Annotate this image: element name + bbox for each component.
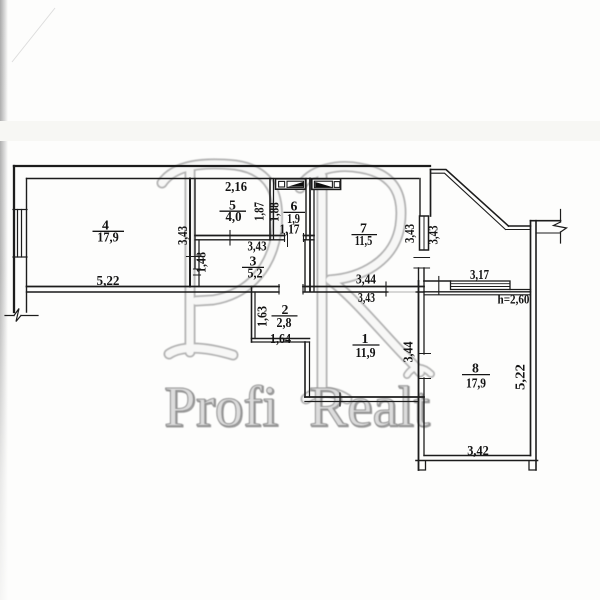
svg-text:5,2: 5,2 [248,266,263,281]
svg-text:1: 1 [362,331,369,346]
svg-text:3,42: 3,42 [467,443,489,458]
svg-text:1,64: 1,64 [270,331,291,346]
svg-text:3,43: 3,43 [426,225,441,244]
svg-text:3,43: 3,43 [402,224,417,243]
svg-text:3,44: 3,44 [401,341,416,362]
svg-text:3,43: 3,43 [358,290,375,305]
svg-text:11,9: 11,9 [356,345,376,360]
svg-text:17,9: 17,9 [97,230,119,245]
svg-text:3,44: 3,44 [356,272,376,287]
svg-text:11,5: 11,5 [355,233,373,248]
svg-text:1,17: 1,17 [280,222,300,237]
svg-text:h=2,60: h=2,60 [498,292,530,307]
svg-text:3,43: 3,43 [248,239,267,254]
svg-text:8: 8 [472,361,479,376]
svg-text:3,43: 3,43 [175,226,190,245]
svg-text:1,48: 1,48 [194,252,209,273]
svg-text:17,9: 17,9 [466,376,486,391]
svg-text:1,63: 1,63 [255,306,270,327]
svg-text:Realt: Realt [309,376,429,439]
svg-text:Profi: Profi [164,376,278,439]
svg-text:1,88: 1,88 [267,202,282,222]
svg-text:2,8: 2,8 [277,315,292,330]
svg-text:5,22: 5,22 [513,364,528,390]
svg-text:3,17: 3,17 [470,267,489,282]
svg-text:1,87: 1,87 [252,202,267,221]
svg-text:4,0: 4,0 [226,209,242,224]
svg-text:5,22: 5,22 [97,273,120,288]
svg-text:2,16: 2,16 [225,179,247,194]
